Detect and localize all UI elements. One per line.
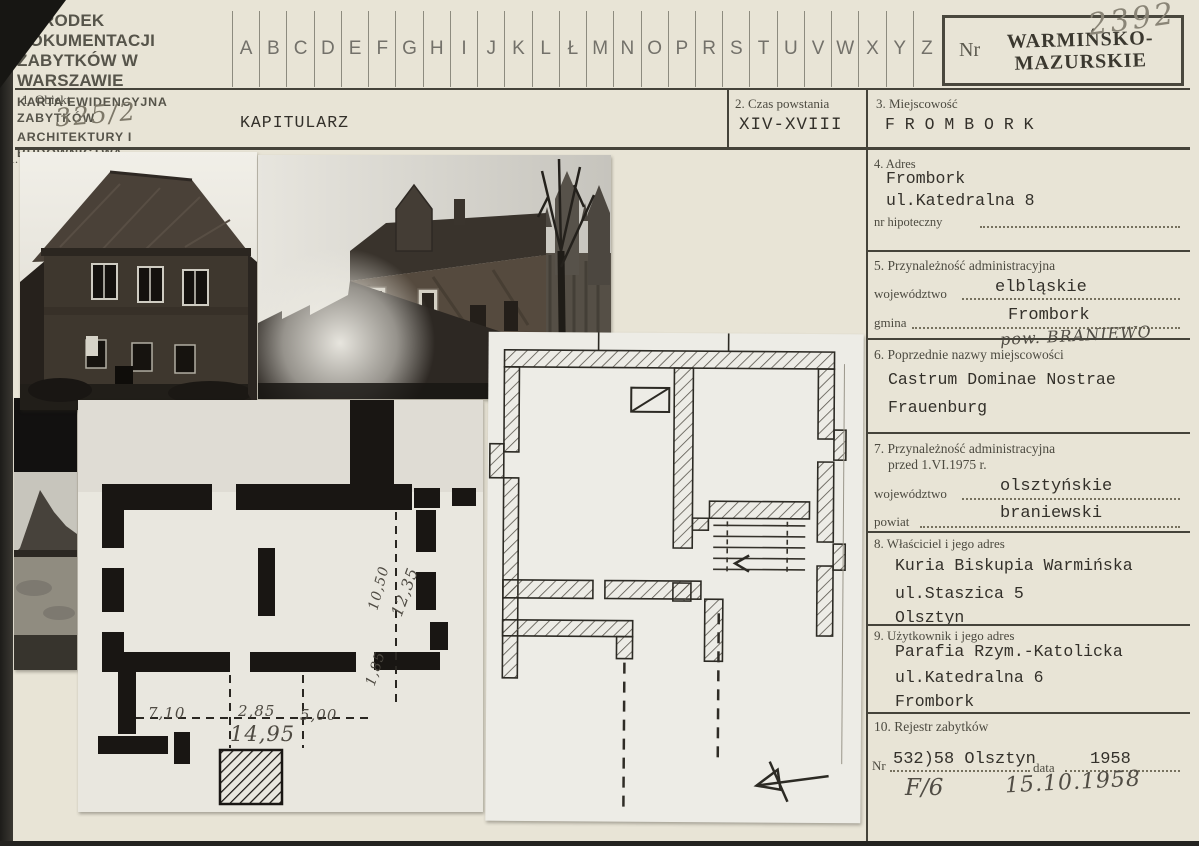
scan-bottom-edge	[0, 841, 1199, 846]
alphabet-letter: I	[450, 11, 477, 87]
alphabet-letter: W	[831, 11, 858, 87]
locality-name: F R O M B O R K	[885, 115, 1034, 134]
alphabet-letter: X	[858, 11, 885, 87]
alphabet-letter: H	[423, 11, 450, 87]
field-4-rule	[868, 250, 1190, 252]
voivodeship-line	[962, 297, 1180, 300]
alphabet-letter: U	[777, 11, 804, 87]
register-nr-value: 532)58 Olsztyn	[893, 750, 1036, 769]
former-voivodeship-line	[962, 497, 1180, 500]
alphabet-letter: A	[232, 11, 259, 87]
former-voivodeship-label: województwo	[874, 486, 947, 502]
alphabet-letter: E	[341, 11, 368, 87]
register-handwritten-1: F/6	[905, 775, 943, 801]
alphabet-letter: R	[695, 11, 722, 87]
org-block: OŚRODEK DOKUMENTACJI ZABYTKÓW W WARSZAWI…	[17, 11, 233, 161]
alphabet-letter: J	[477, 11, 504, 87]
former-powiat-label: powiat	[874, 514, 909, 530]
alphabet-letter: M	[586, 11, 613, 87]
gmina-label: gmina	[874, 315, 907, 331]
photo-fragment-strip	[14, 398, 77, 670]
alphabet-letter: F	[368, 11, 395, 87]
nr-label: Nr	[959, 39, 980, 62]
owner-line-1: Kuria Biskupia Warmińska	[895, 556, 1133, 575]
alphabet-letter: O	[641, 11, 668, 87]
alphabet-letter: K	[504, 11, 531, 87]
former-voivodeship-value: olsztyńskie	[1000, 477, 1112, 496]
mortgage-number-line	[980, 225, 1180, 228]
register-nr-line	[890, 769, 1030, 772]
former-name-1: Castrum Dominae Nostrae	[888, 370, 1116, 389]
voivodeship-value: elbląskie	[995, 278, 1087, 297]
field-6-rule	[868, 432, 1190, 434]
field-7-rule	[868, 531, 1190, 533]
header-rule	[15, 88, 1190, 90]
dimension-label: 5,00	[300, 706, 337, 724]
org-line-2: ZABYTKÓW W WARSZAWIE	[17, 51, 233, 91]
address-line-2: ul.Katedralna 8	[886, 191, 1035, 210]
field-8-label: 8. Właściciel i jego adres	[874, 536, 1005, 552]
alphabet-letter: N	[613, 11, 640, 87]
dimension-label: 2,85	[238, 702, 275, 720]
mortgage-number-label: nr hipoteczny	[874, 215, 942, 230]
alphabet-letter: C	[286, 11, 313, 87]
alphabet-letter: S	[722, 11, 749, 87]
scanned-record-card: OŚRODEK DOKUMENTACJI ZABYTKÓW W WARSZAWI…	[0, 0, 1199, 846]
construction-period: XIV-XVIII	[739, 115, 843, 135]
alphabet-letter: G	[395, 11, 422, 87]
alphabet-letter: P	[668, 11, 695, 87]
alphabet-letter: Z	[913, 11, 940, 87]
field-7-label-line-2: przed 1.VI.1975 r.	[888, 457, 987, 473]
register-nr-label: Nr	[872, 758, 886, 774]
floor-plan-drawing	[485, 332, 863, 824]
field-2-label: 2. Czas powstania	[735, 96, 829, 112]
owner-line-2: ul.Staszica 5	[895, 584, 1024, 603]
field-9-rule	[868, 712, 1190, 714]
gmina-value: Frombork	[1008, 306, 1090, 325]
alphabet-letter: V	[804, 11, 831, 87]
scan-left-edge	[0, 0, 13, 846]
field-divider	[727, 88, 729, 148]
user-line-1: Parafia Rzym.-Katolicka	[895, 642, 1123, 661]
dimension-label: 14,95	[230, 722, 295, 746]
field-8-rule	[868, 624, 1190, 626]
user-line-2: ul.Katedralna 6	[895, 668, 1044, 687]
field-5-label: 5. Przynależność administracyjna	[874, 258, 1055, 274]
field-3-label: 3. Miejscowość	[876, 96, 958, 112]
column-divider	[866, 88, 868, 846]
former-name-2: Frauenburg	[888, 398, 987, 417]
former-powiat-line	[920, 525, 1180, 528]
field1-bottom-rule	[15, 147, 1190, 150]
alphabet-letter: D	[314, 11, 341, 87]
floor-plan-photocopy: 7,10 2,85 5,00 14,95 1,85 10,50 12,35	[78, 400, 483, 812]
alphabet-letter: T	[749, 11, 776, 87]
dimension-label: 7,10	[148, 704, 185, 722]
field-5-rule	[868, 338, 1190, 340]
alphabet-letter: L	[532, 11, 559, 87]
alphabet-letter: Ł	[559, 11, 586, 87]
field-10-label: 10. Rejestr zabytków	[874, 719, 988, 735]
field-6-label: 6. Poprzednie nazwy miejscowości	[874, 347, 1064, 363]
alphabet-strip: ABCDEFGHIJKLŁMNOPRSTUVWXYZ	[232, 11, 940, 87]
register-date-value: 1958	[1090, 750, 1131, 769]
voivodeship-label: województwo	[874, 286, 947, 302]
photo-building-front	[20, 152, 257, 410]
former-powiat-value: braniewski	[1000, 504, 1102, 523]
user-line-3: Frombork	[895, 692, 974, 711]
field-7-label-line-1: 7. Przynależność administracyjna	[874, 441, 1055, 457]
address-line-1: Frombork	[886, 169, 965, 188]
alphabet-letter: Y	[886, 11, 913, 87]
object-name: KAPITULARZ	[240, 113, 349, 132]
alphabet-letter: B	[259, 11, 286, 87]
